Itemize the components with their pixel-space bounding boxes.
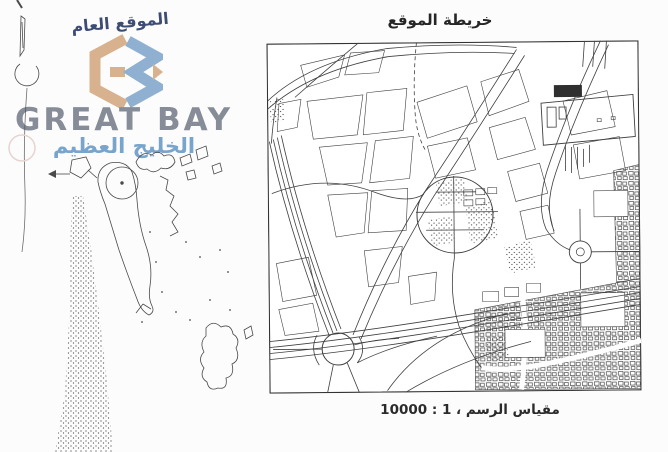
brand-name-arabic: الخليج العظيم [10,134,238,158]
gb-monogram-arrow [153,64,163,80]
stipple-bank [55,196,113,452]
scale-label: مقياس الرسم ، 1 : 10000 [380,402,560,418]
solid-building [554,85,582,97]
site-location-map [266,40,641,393]
island-outline [98,162,153,315]
site-marker-circle [106,167,138,199]
scanned-page: الموقع العام GREAT BAY الخليج العظيم [0,0,668,452]
brand-name-english: GREAT BAY [10,102,238,138]
great-bay-logo [83,33,163,111]
scan-mark [17,0,22,8]
gb-monogram-b [128,41,157,103]
site-map-title: خريطة الموقع [385,11,495,29]
tower-outline [20,16,25,56]
